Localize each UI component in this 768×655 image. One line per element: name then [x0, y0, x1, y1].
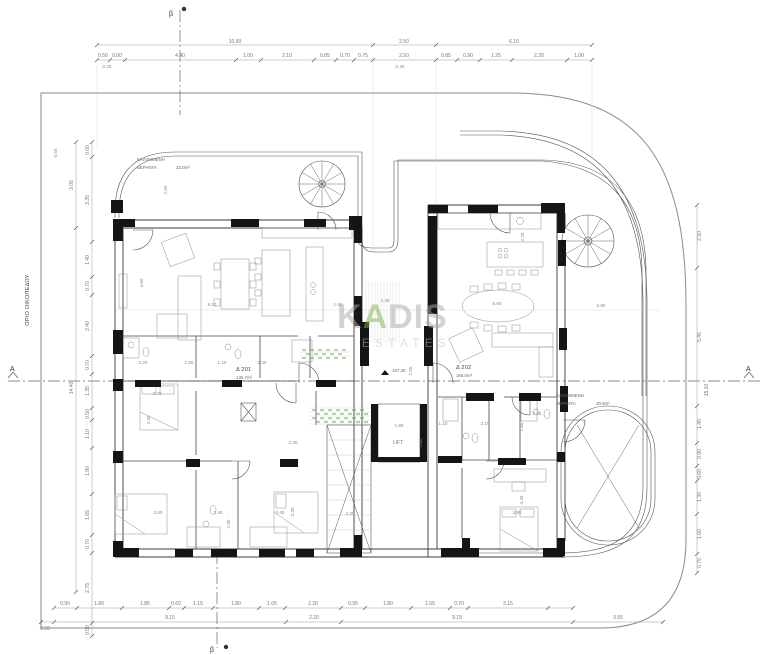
- bathroom-fixtures: [123, 338, 550, 527]
- floor-plan-svg: β β A A 10.90 2.50 6.10 0.50 0.60 4.40 1…: [0, 0, 768, 655]
- dim-label: 6.10: [509, 39, 519, 45]
- main-staircase: [327, 425, 371, 553]
- dim-label: 2.20: [534, 53, 544, 59]
- interior-dim-label: 2.30: [226, 519, 231, 528]
- dim-label: 0.70: [85, 360, 91, 370]
- dim-label: 1.80: [383, 601, 393, 607]
- black-piers: [111, 200, 568, 557]
- section-line-vertical-bottom: β: [210, 552, 228, 654]
- extension-lines: [97, 62, 660, 310]
- dim-label: 1.05: [267, 601, 277, 607]
- dim-label: 1.25: [491, 53, 501, 59]
- dim-label: 1.00: [243, 53, 253, 59]
- interior-dim-label: 1.60: [418, 438, 423, 447]
- dim-label: 3.35: [85, 195, 91, 205]
- plot-boundary-label: ΟΡΙΟ ΟΙΚΟΠΕΔΟΥ: [25, 274, 31, 326]
- dim-label: 1.80: [85, 466, 91, 476]
- unit2-name: Δ 202: [456, 365, 471, 371]
- dim-label: 1.55: [425, 601, 435, 607]
- level-label: 167.30: [392, 368, 406, 373]
- dimension-col-left: 0.60 3.35 1.40 0.70 2.40 0.70 1.35 0.50 …: [69, 140, 94, 638]
- dim-label: 2.20: [308, 601, 318, 607]
- dim-label: 0.25: [396, 64, 405, 69]
- interior-dim-label: 2.15: [481, 421, 490, 426]
- dim-label: 5.45: [697, 332, 703, 342]
- interior-dim-label: 2.30: [289, 440, 298, 445]
- interior-dim-label: 2.50: [163, 185, 168, 194]
- dim-label: 0.50: [98, 53, 108, 59]
- interior-dim-label: 2.55: [408, 366, 413, 375]
- doors-layer: [133, 212, 585, 479]
- interior-dim-label: 1.65: [519, 422, 524, 431]
- dim-label: 1.00: [574, 53, 584, 59]
- section-marker-top-dot: [182, 7, 186, 11]
- interior-dim-label: 3.80: [513, 510, 522, 515]
- dim-label: 0.25: [103, 64, 112, 69]
- interior-dim-label: 3.30: [146, 415, 151, 424]
- unit1-area: 136.7m²: [236, 375, 253, 380]
- watermark-text: KADIS: [337, 298, 448, 336]
- dim-label: 1.35: [85, 386, 91, 396]
- veranda1-label-line1: ΚΑΛΥΜΜΕΝΗ: [137, 157, 165, 162]
- dim-label: 0.90: [60, 601, 70, 607]
- dim-label: 1.65: [85, 510, 91, 520]
- section-marker-top: β: [169, 11, 173, 18]
- dimension-col-right: 2.50 5.45 1.45 0.90 0.60 1.30 1.60 0.75 …: [695, 203, 710, 575]
- dim-label: 0.50: [85, 409, 91, 419]
- veranda2-label-line1: ΚΑΛΥΜΜΕΝΗ: [556, 393, 584, 398]
- dim-label: 1.80: [231, 601, 241, 607]
- interior-dim-label: 4.45: [519, 495, 524, 504]
- interior-dim-label: 1.10: [218, 360, 227, 365]
- spiral-stair-right: [562, 215, 614, 267]
- dim-label: 0.60: [171, 601, 181, 607]
- dim-label: 4.40: [175, 53, 185, 59]
- interior-dim-label: 2.20: [139, 360, 148, 365]
- dim-label: 2.40: [85, 321, 91, 331]
- dim-label: 0.90: [697, 449, 703, 459]
- veranda1-area: 32.0m²: [176, 165, 190, 170]
- dim-label: 0.85: [320, 53, 330, 59]
- dim-label: 1.85: [140, 601, 150, 607]
- dimension-row-bottom-2: 0.50 9.15 2.20 9.15 3.55: [39, 615, 665, 632]
- interior-dim-label: 2.90: [597, 303, 606, 308]
- dim-label: 9.15: [165, 615, 175, 621]
- section-marker-bottom-dot: [224, 645, 228, 649]
- spiral-stair-left: [299, 161, 345, 207]
- dim-label: 1.45: [697, 419, 703, 429]
- dim-label: 2.20: [309, 615, 319, 621]
- interior-dim-label: 8.10: [208, 302, 217, 307]
- dim-label: 0.50: [40, 626, 50, 632]
- dim-label: 3.05: [69, 180, 75, 190]
- interior-dim-label: 2.15: [533, 411, 542, 416]
- veranda1-label-line2: ΒΕΡΑΝΤΑ: [137, 165, 157, 170]
- unit1-name: Δ 201: [236, 367, 251, 373]
- dim-label: 1.40: [85, 255, 91, 265]
- interior-dim-label: 3.40: [276, 510, 285, 515]
- dim-label: 0.50: [85, 625, 91, 635]
- lift-label: LIFT: [393, 440, 403, 446]
- unit2-area: 166.0m²: [456, 373, 473, 378]
- dim-label: 2.75: [85, 583, 91, 593]
- interior-dim-label: 1.80: [395, 423, 404, 428]
- dim-label: 1.60: [697, 529, 703, 539]
- dim-label: 0.85: [441, 53, 451, 59]
- veranda2-label-line2: ΒΕΡΑΝΤΑ: [556, 401, 576, 406]
- dim-label: 0.70: [340, 53, 350, 59]
- dim-label: 0.70: [85, 281, 91, 291]
- interior-dim-label: 1.40: [214, 510, 223, 515]
- dim-label: 0.60: [697, 469, 703, 479]
- dim-label: 3.15: [503, 601, 513, 607]
- watermark-subtext: ESTATES: [362, 338, 451, 350]
- dim-label: 0.75: [697, 558, 703, 568]
- dimension-row-bottom-1: 0.90 1.80 1.85 0.60 1.15 1.80 1.05 2.20 …: [52, 601, 575, 610]
- section-marker-left: A: [10, 366, 15, 373]
- dim-label: 2.10: [282, 53, 292, 59]
- dim-label: 0.75: [358, 53, 368, 59]
- dimension-row-top-2: 0.50 0.60 4.40 1.00 2.10 0.85 0.70 0.75 …: [95, 53, 594, 69]
- veranda2-area: 30.8m²: [596, 401, 610, 406]
- interior-dim-label: 2.20: [346, 511, 355, 516]
- section-marker-right: A: [746, 366, 751, 373]
- interior-d im-label: 1.90: [334, 302, 343, 307]
- interior-dim-label: 3.20: [153, 391, 162, 396]
- canopy-outline: [115, 152, 646, 396]
- interior-dim-label: 1.50: [185, 360, 194, 365]
- dim-label: 0.60: [112, 53, 122, 59]
- interior-partitions: [123, 336, 557, 549]
- dim-label: 2.50: [399, 39, 409, 45]
- interior-dim-label: 4.60: [139, 278, 144, 287]
- interior-dim-label: 0.50: [53, 148, 58, 157]
- interior-dim-label: 1.10: [439, 421, 448, 426]
- dim-label: 1.15: [193, 601, 203, 607]
- interior-dim-label: 2.25: [520, 232, 525, 241]
- dim-label: 2.50: [399, 53, 409, 59]
- dim-label: 2.50: [697, 231, 703, 241]
- dim-label: 10.90: [229, 39, 242, 45]
- dim-label: 0.95: [348, 601, 358, 607]
- level-marker-icon: [381, 370, 389, 375]
- dim-label: 1.30: [697, 492, 703, 502]
- dim-label: 1.80: [94, 601, 104, 607]
- veranda-pool: [561, 406, 655, 545]
- dim-label: 1.10: [85, 429, 91, 439]
- dimension-row-top-1: 10.90 2.50 6.10: [95, 39, 594, 47]
- dim-label: 3.55: [613, 615, 623, 621]
- dim-label: 9.15: [452, 615, 462, 621]
- section-line-vertical-top: β: [169, 7, 186, 115]
- dim-label: 0.70: [85, 539, 91, 549]
- section-marker-bottom: β: [210, 647, 214, 654]
- interior-dim-label: 2.30: [258, 360, 267, 365]
- dim-label: 0.60: [85, 145, 91, 155]
- dim-label: 0.70: [454, 601, 464, 607]
- dim-label: 0.90: [463, 53, 473, 59]
- interior-dim-label: 3.50: [154, 510, 163, 515]
- interior-dim-label: 3.30: [290, 507, 295, 516]
- dim-label: 14.40: [69, 382, 75, 395]
- interior-dim-label: 5.60: [493, 301, 502, 306]
- dim-label: 15.10: [704, 384, 710, 397]
- interior-dim-label: 4.40: [381, 298, 390, 303]
